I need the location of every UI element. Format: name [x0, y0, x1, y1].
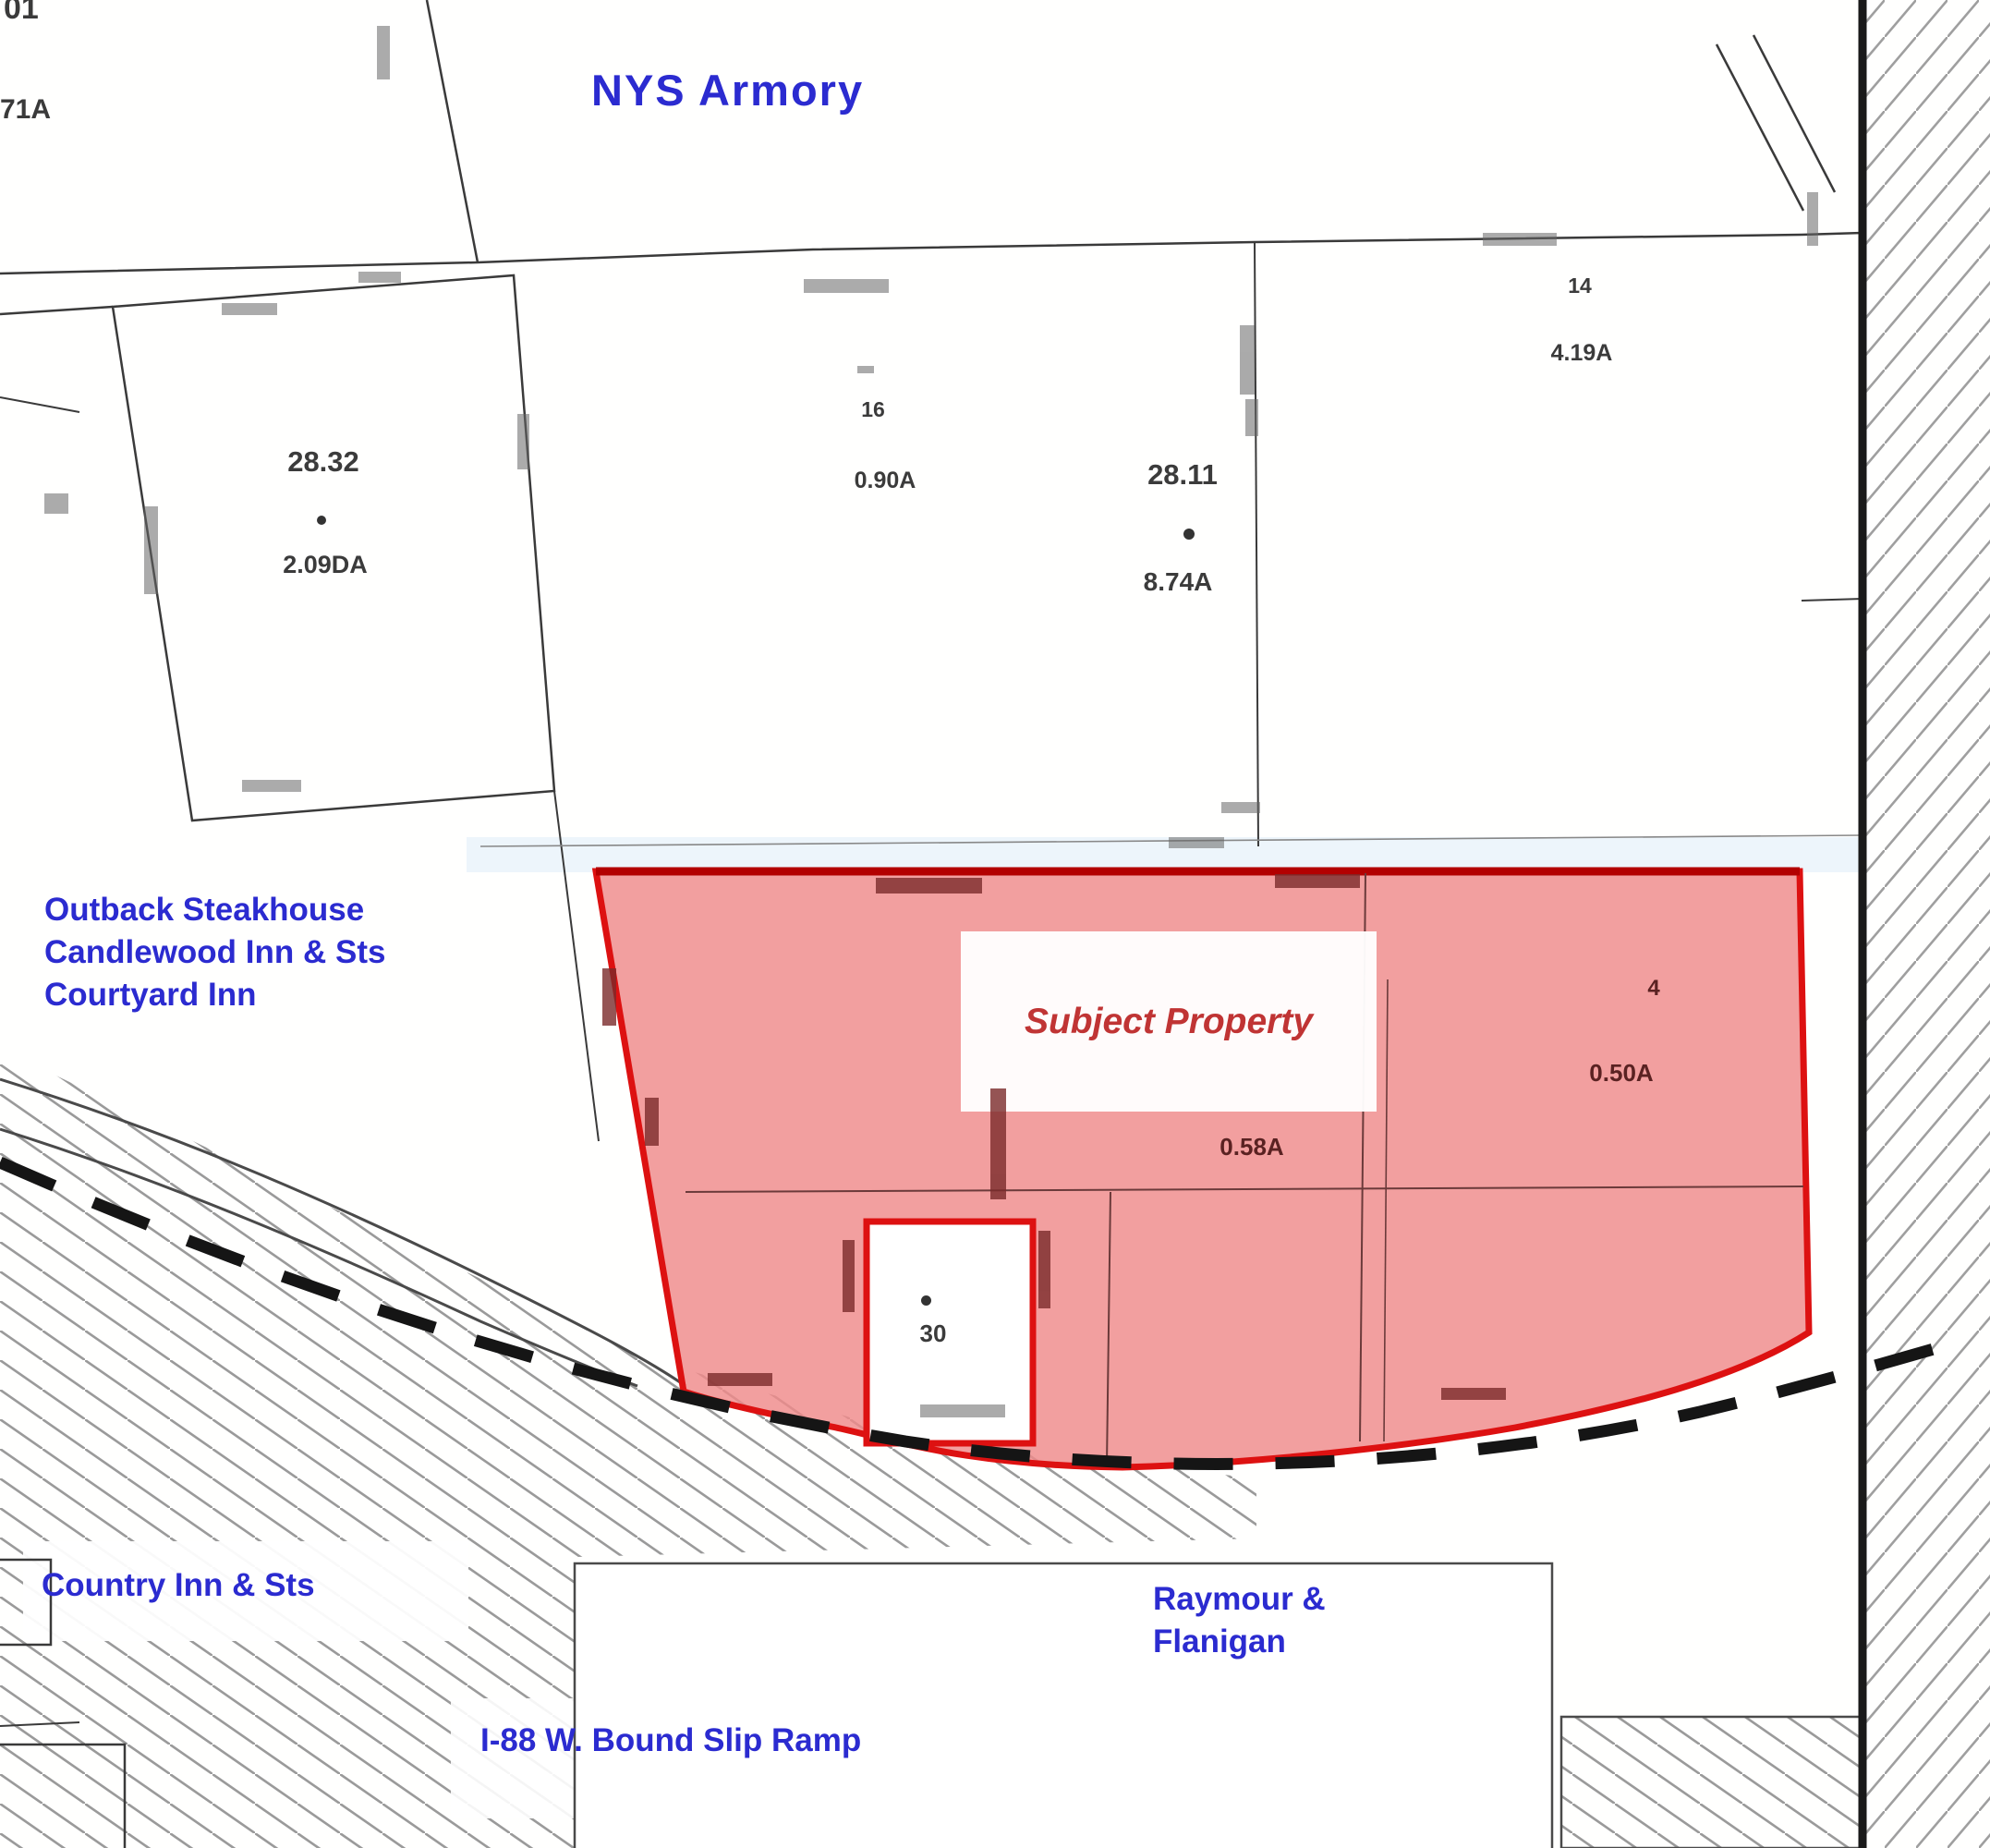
- hatch-right-strip: [1866, 0, 1990, 1848]
- parcel-area-16: 0.90A: [830, 468, 940, 494]
- parcel-area-28-32: 2.09DA: [242, 551, 408, 579]
- northeast-slash-1: [1717, 44, 1803, 211]
- diagonal-boundary-line: [427, 0, 478, 262]
- north-boundary-line: [0, 233, 1863, 274]
- east-tick-line: [1802, 599, 1863, 601]
- landmark-west-group: Outback Steakhouse Candlewood Inn & Sts …: [44, 889, 385, 1017]
- west-edge-tick: [0, 397, 79, 412]
- parcel-number-14: 14: [1552, 274, 1608, 298]
- parcel-28-32-outline: [113, 275, 554, 821]
- parcel-number-16: 16: [845, 397, 901, 422]
- tax-parcel-map: NYS Armory Outback Steakhouse Candlewood…: [0, 0, 1990, 1848]
- notch-parcel-number: 30: [901, 1319, 965, 1348]
- road-label-slip-ramp: I-88 W. Bound Slip Ramp: [480, 1722, 861, 1759]
- parcel-area-14: 4.19A: [1526, 340, 1637, 367]
- subject-subparcel-area-a: 0.58A: [1192, 1133, 1312, 1161]
- region-title: NYS Armory: [591, 65, 864, 115]
- parcel-area-28-11: 8.74A: [1104, 567, 1252, 597]
- parcel-number-28-11: 28.11: [1109, 458, 1256, 492]
- northeast-slash-2: [1753, 35, 1835, 192]
- tint-band: [467, 837, 1862, 872]
- subject-lot-number-4: 4: [1640, 976, 1668, 1002]
- raymour-parcel-outline: [575, 1563, 1552, 1848]
- separator-dot: [1183, 529, 1195, 540]
- separator-dot: [921, 1295, 931, 1306]
- subject-subparcel-area-b: 0.50A: [1561, 1059, 1681, 1088]
- parcel-divider-line: [1255, 242, 1258, 846]
- edge-fragment-top: 01: [4, 0, 39, 27]
- bottom-right-parcel-outline: [1561, 1717, 1863, 1848]
- subject-property-label: Subject Property: [961, 931, 1377, 1112]
- west-connector-line: [0, 307, 113, 314]
- landmark-country-inn: Country Inn & Sts: [42, 1567, 315, 1604]
- landmark-raymour-flanigan: Raymour & Flanigan: [1153, 1578, 1326, 1662]
- parcel-number-28-32: 28.32: [249, 445, 397, 479]
- edge-fragment-71a: 71A: [0, 94, 51, 126]
- separator-dot: [317, 516, 326, 525]
